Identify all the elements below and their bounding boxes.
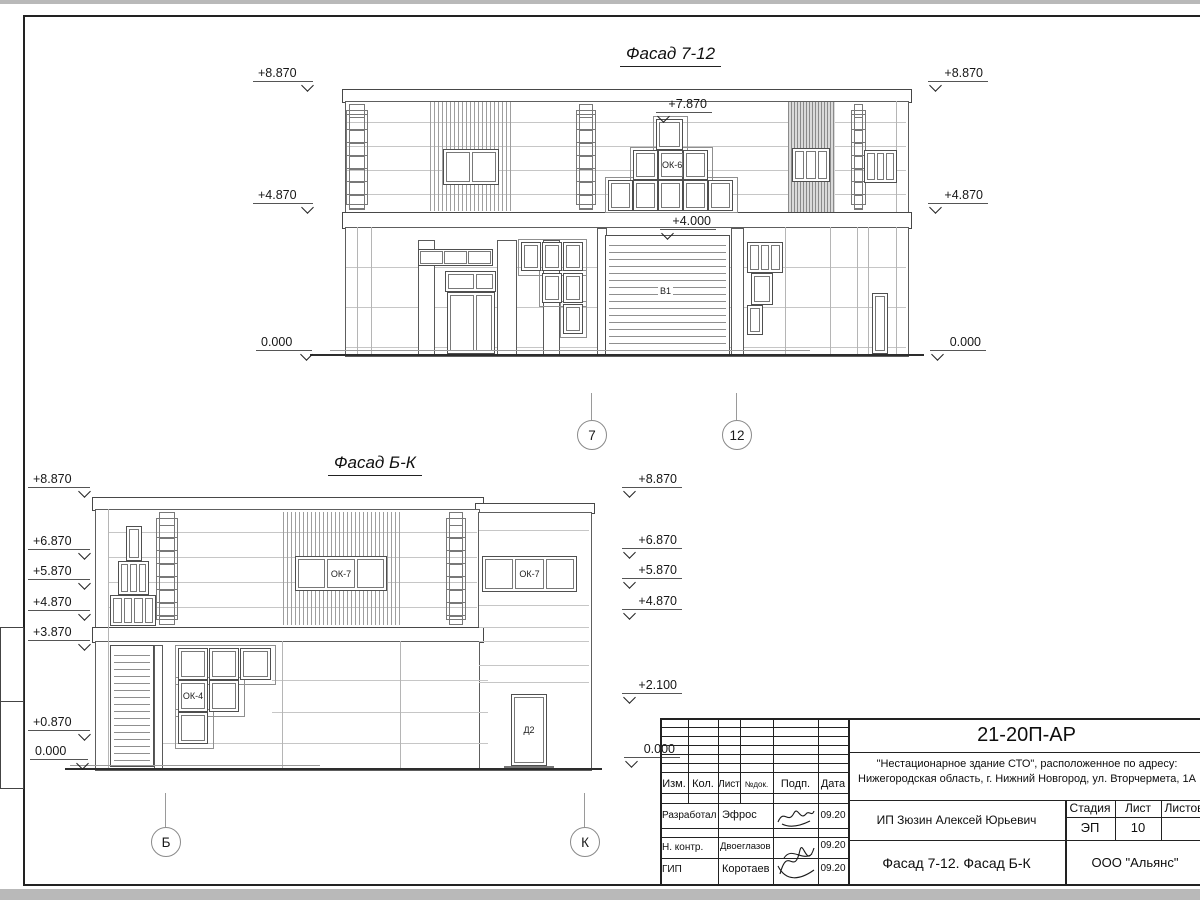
window (443, 149, 499, 185)
window (178, 648, 208, 680)
sheet-label: Лист (1115, 800, 1161, 817)
window (542, 242, 562, 271)
window (683, 150, 708, 180)
door-label: Д2 (514, 697, 544, 763)
margin-stamp-box (0, 627, 24, 703)
wall-seam (857, 227, 858, 355)
sheet-frame-bottom (23, 884, 1200, 886)
corner-seam (108, 509, 109, 769)
titleblock-line (718, 718, 719, 885)
window (683, 180, 708, 211)
column-header-list: Лист (718, 776, 740, 793)
stage-label: Стадия (1065, 800, 1115, 817)
elevation-mark: +4.870 (622, 594, 682, 610)
wall-seam (357, 227, 358, 355)
sidewalk-line (70, 765, 320, 766)
elevation-mark: +5.870 (28, 564, 90, 580)
sidewalk-line (330, 350, 810, 351)
wall-seam (272, 680, 488, 681)
window: ОК-7 (295, 556, 387, 591)
axis-bubble-7: 7 (577, 420, 607, 450)
window (178, 712, 208, 744)
axis-leader-line (584, 793, 585, 827)
titleblock-line (660, 803, 848, 804)
wall-seam (896, 227, 897, 355)
window (747, 242, 783, 273)
elevation-mark: 0.000 (256, 335, 312, 351)
pilaster (731, 228, 744, 356)
margin-stamp-box (0, 701, 24, 789)
window (118, 561, 149, 595)
window: ОК-7 (482, 556, 577, 592)
window (563, 304, 583, 334)
window (792, 148, 830, 182)
window (608, 180, 633, 211)
facade-b-k-title: Фасад Б-К (328, 453, 422, 476)
sheets-label: Листов (1161, 800, 1200, 817)
roller-gate (110, 645, 154, 767)
row-role: Разработал (662, 805, 718, 826)
window (633, 150, 658, 180)
wall-seam (479, 665, 589, 666)
elevation-mark: +2.100 (622, 678, 682, 694)
client-name: ИП Зюзин Алексей Юрьевич (850, 804, 1063, 838)
window-label: ОК-6 (661, 153, 683, 177)
window (521, 242, 541, 271)
window (110, 595, 156, 626)
axis-leader-line (736, 393, 737, 420)
window (751, 273, 773, 305)
wall-seam (830, 227, 831, 355)
elevation-mark: +4.870 (928, 188, 988, 204)
elevation-mark: 0.000 (30, 744, 88, 760)
sheet-frame-top (23, 15, 1200, 17)
axis-bubble-k: К (570, 827, 600, 857)
wall-seam (479, 641, 589, 642)
window (658, 180, 683, 211)
elevation-mark: +5.870 (622, 563, 682, 579)
quoin-column (156, 512, 178, 625)
window: ОК-4 (178, 680, 208, 712)
window (563, 273, 583, 303)
titleblock-line (848, 752, 1200, 753)
elevation-mark: 0.000 (930, 335, 986, 351)
row-name: Эфрос (722, 805, 772, 826)
elevation-mark: +8.870 (253, 66, 313, 82)
window-label: ОК-7 (327, 559, 354, 588)
window (542, 273, 562, 303)
window: ОК-6 (658, 150, 683, 180)
axis-bubble-12: 12 (722, 420, 752, 450)
window (126, 526, 142, 561)
elevation-mark: +4.870 (28, 595, 90, 611)
elevation-mark: +6.870 (28, 534, 90, 550)
wall-seam (282, 641, 283, 769)
wall-seam (272, 712, 488, 713)
entrance-door (447, 292, 495, 354)
wall-seam (371, 227, 372, 355)
column-header-data: Дата (818, 776, 848, 793)
window (240, 648, 271, 680)
axis-bubble-b: Б (151, 827, 181, 857)
window (563, 242, 583, 271)
elevation-mark: +6.870 (622, 533, 682, 549)
page-top-strip (0, 0, 1200, 4)
ground-line (65, 768, 602, 770)
row-date: 09.20 (818, 807, 848, 824)
ground-line (310, 354, 924, 356)
quoin-column (346, 104, 368, 210)
wall-seam (785, 227, 786, 355)
window (656, 119, 683, 150)
column-header-podp: Подп. (773, 776, 818, 793)
column-header-izm: Изм. (660, 776, 688, 793)
elevation-mark: +4.870 (253, 188, 313, 204)
row-role: ГИП (662, 860, 718, 879)
signature (776, 805, 816, 827)
window (864, 150, 897, 183)
column-header-kol: Кол. (688, 776, 718, 793)
elevation-mark: +8.870 (622, 472, 682, 488)
sheet-number: 10 (1115, 817, 1161, 840)
elevation-mark: +3.870 (28, 625, 90, 641)
door-d2: Д2 (511, 694, 547, 766)
row-date: 09.20 (818, 838, 848, 853)
stage-value: ЭП (1065, 817, 1115, 840)
titleblock-line (848, 840, 1200, 841)
entrance-transom (445, 271, 496, 292)
wall-seam (479, 682, 589, 683)
wall-seam (479, 530, 589, 531)
doc-number: 21-20П-АР (848, 720, 1200, 750)
titleblock-line (660, 858, 848, 859)
window (209, 680, 239, 712)
titleblock-line (660, 828, 848, 829)
elevation-mark: +8.870 (28, 472, 90, 488)
axis-leader-line (591, 393, 592, 420)
signature (774, 836, 818, 882)
row-role: Н. контр. (662, 838, 718, 857)
window (209, 648, 239, 680)
elevation-mark: +4.000 (660, 214, 716, 230)
facade-7-12-title: Фасад 7-12 (620, 44, 721, 67)
entrance-sign-board (418, 249, 493, 266)
row-name: Двоеглазов (720, 838, 773, 857)
quoin-column (446, 512, 466, 625)
project-address-line2: Нижегородская область, г. Нижний Новгоро… (852, 772, 1200, 786)
elevation-mark: +0.870 (28, 715, 90, 731)
drawing-sheet: { "sheet": { "facade1": { "title": "Фаса… (0, 0, 1200, 900)
row-date: 09.20 (818, 860, 848, 877)
window-label: ОК-4 (181, 683, 205, 709)
row-name: Коротаев (722, 860, 773, 879)
project-address-line1: "Нестационарное здание СТО", расположенн… (852, 757, 1200, 771)
wall-seam (479, 627, 589, 628)
window (633, 180, 658, 211)
elevation-mark: +8.870 (928, 66, 988, 82)
quoin-column (576, 104, 596, 210)
window (708, 180, 733, 211)
window (747, 305, 763, 335)
company-name: ООО "Альянс" (1065, 844, 1200, 882)
pilaster (497, 240, 517, 356)
wall-seam (479, 605, 589, 606)
wall-seam (868, 227, 869, 355)
wall-seam (400, 641, 401, 769)
pilaster (154, 645, 163, 768)
window-label: ОК-7 (515, 559, 543, 589)
column-header-ndok: №док. (740, 776, 773, 793)
axis-leader-line (165, 793, 166, 827)
gate-label: В1 (658, 286, 673, 296)
elevation-mark: +7.870 (656, 97, 712, 113)
drawing-title: Фасад 7-12. Фасад Б-К (850, 844, 1063, 882)
page-bottom-strip (0, 889, 1200, 900)
side-door (872, 293, 888, 354)
